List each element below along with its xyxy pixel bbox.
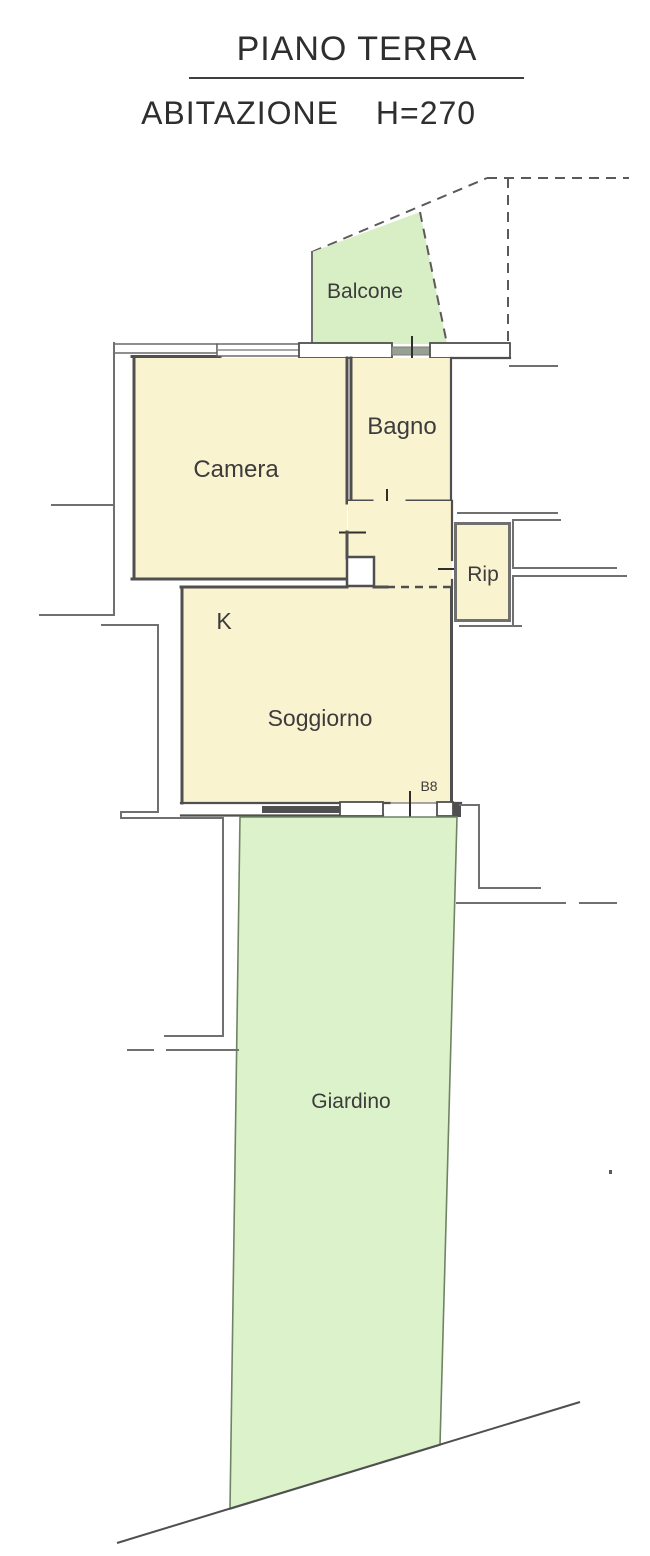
- entry-door-label: B8: [420, 778, 437, 794]
- floorplan-page: PIANO TERRA ABITAZIONE H=270 Balcone Cam…: [0, 0, 650, 1556]
- room-bagno: Bagno: [348, 358, 451, 514]
- room-camera: Camera: [132, 358, 348, 579]
- bagno-label: Bagno: [367, 413, 436, 440]
- hallway: [339, 501, 462, 588]
- balcone-area: [312, 212, 447, 344]
- window-south-2: [437, 802, 453, 816]
- title-block: PIANO TERRA ABITAZIONE H=270: [141, 30, 524, 131]
- rip-label: Rip: [467, 563, 499, 586]
- room-rip: Rip: [456, 524, 510, 621]
- window-north-3: [430, 343, 510, 358]
- survey-dot: [609, 1170, 612, 1174]
- kitchen-label: K: [216, 608, 232, 634]
- title-line1: PIANO TERRA: [237, 30, 478, 68]
- window-north-2: [299, 343, 392, 358]
- giardino-label: Giardino: [311, 1090, 390, 1113]
- title-line2-right: H=270: [376, 95, 476, 131]
- window-camera-north: [114, 344, 217, 353]
- room-balcone: Balcone: [312, 212, 447, 344]
- soggiorno-label: Soggiorno: [268, 705, 373, 731]
- balcone-label: Balcone: [327, 280, 403, 303]
- wall-pillar: [347, 557, 374, 586]
- east-boundary-lines: [457, 805, 616, 1174]
- window-south: [340, 802, 383, 816]
- camera-label: Camera: [193, 456, 279, 483]
- window-glazing-south: [262, 806, 340, 813]
- room-soggiorno: K Soggiorno B8: [181, 587, 452, 803]
- floorplan-drawing: PIANO TERRA ABITAZIONE H=270 Balcone Cam…: [0, 0, 650, 1556]
- room-giardino: Giardino: [230, 817, 457, 1509]
- title-line2-left: ABITAZIONE: [141, 95, 339, 131]
- giardino-area: [230, 817, 457, 1509]
